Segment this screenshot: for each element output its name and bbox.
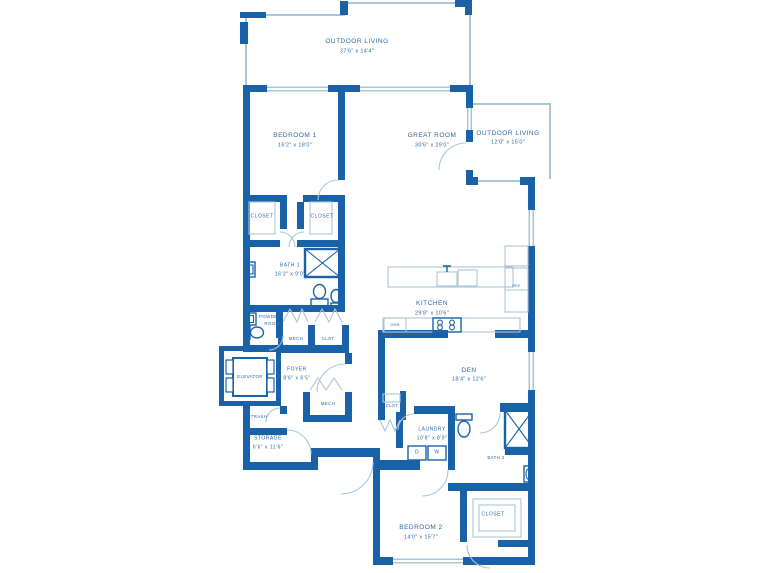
- washer-label: W: [434, 451, 439, 456]
- dryer-label: D: [415, 451, 419, 456]
- toilet-icon: [456, 414, 472, 437]
- oven-label: OVN: [390, 323, 399, 327]
- room-label-mech-upper: MECH: [289, 337, 303, 342]
- room-dims-bath-1: 16'2" x 9'0": [275, 272, 306, 278]
- room-dims-outdoor-living-right: 12'0" x 15'0": [491, 140, 525, 146]
- floor-plan-drawing: [0, 0, 764, 573]
- room-label-bedroom-2: BEDROOM 2: [399, 525, 443, 532]
- room-label-foyer: FOYER: [287, 368, 307, 373]
- room-label-closet-1: CLOSET: [250, 215, 273, 220]
- toilet-icon: [311, 285, 328, 307]
- floor-plan: OUTDOOR LIVING 37'6" x 14'4" BEDROOM 1 1…: [0, 0, 764, 573]
- room-label-elevator: ELEVATOR: [237, 375, 263, 380]
- room-label-powder-room-line1: POWDER: [259, 315, 281, 320]
- room-dims-kitchen: 29'8" x 10'6": [415, 311, 449, 317]
- room-dims-laundry: 10'8" x 8'9": [417, 437, 448, 442]
- room-label-clst-den: CLST: [386, 404, 399, 409]
- room-label-powder-room-line2: ROOM: [264, 322, 279, 327]
- room-label-bath-2: BATH 2: [487, 456, 504, 461]
- island-sink-right: [458, 270, 477, 286]
- room-label-great-room: GREAT ROOM: [408, 133, 457, 140]
- clst-den-shelf: [383, 394, 400, 402]
- kitchen-island: [388, 267, 513, 287]
- wall-segments: [219, 0, 535, 565]
- room-label-laundry: LAUNDRY: [418, 428, 445, 433]
- room-label-mech-lower: MECH: [321, 402, 335, 407]
- shower-icon: [305, 249, 340, 277]
- room-label-den: DEN: [461, 368, 476, 375]
- room-label-outdoor-living-top: OUTDOOR LIVING: [325, 39, 388, 46]
- cooktop-icon: [433, 318, 461, 332]
- room-dims-storage: 6'6" x 11'6": [253, 446, 283, 451]
- refrigerator-label: REF: [512, 284, 521, 288]
- island-sink-left: [437, 272, 457, 286]
- room-dims-foyer: 8'6" x 6'5": [283, 377, 310, 382]
- wall: [219, 0, 535, 565]
- room-dims-outdoor-living-top: 37'6" x 14'4": [340, 49, 374, 55]
- room-label-storage: STORAGE: [254, 437, 282, 442]
- room-label-trash: TRASH: [251, 415, 268, 420]
- room-dims-bedroom-2: 14'0" x 15'7": [404, 535, 438, 541]
- room-dims-bedroom-1: 16'2" x 18'0": [278, 143, 312, 149]
- room-label-clst-upper: CLST: [322, 337, 335, 342]
- room-label-bath-1: BATH 1: [280, 264, 300, 269]
- room-label-outdoor-living-right: OUTDOOR LIVING: [476, 131, 539, 138]
- room-label-closet-bedroom-2: CLOSET: [481, 513, 504, 518]
- room-label-closet-2: CLOSET: [310, 215, 333, 220]
- room-label-kitchen: KITCHEN: [416, 301, 448, 308]
- room-dims-great-room: 30'6" x 29'0": [415, 143, 449, 149]
- closet-shelving: [479, 505, 515, 531]
- room-dims-den: 18'4" x 12'6": [452, 377, 486, 383]
- kitchen-tall-cabinet: [505, 246, 528, 266]
- room-label-bedroom-1: BEDROOM 1: [273, 133, 317, 140]
